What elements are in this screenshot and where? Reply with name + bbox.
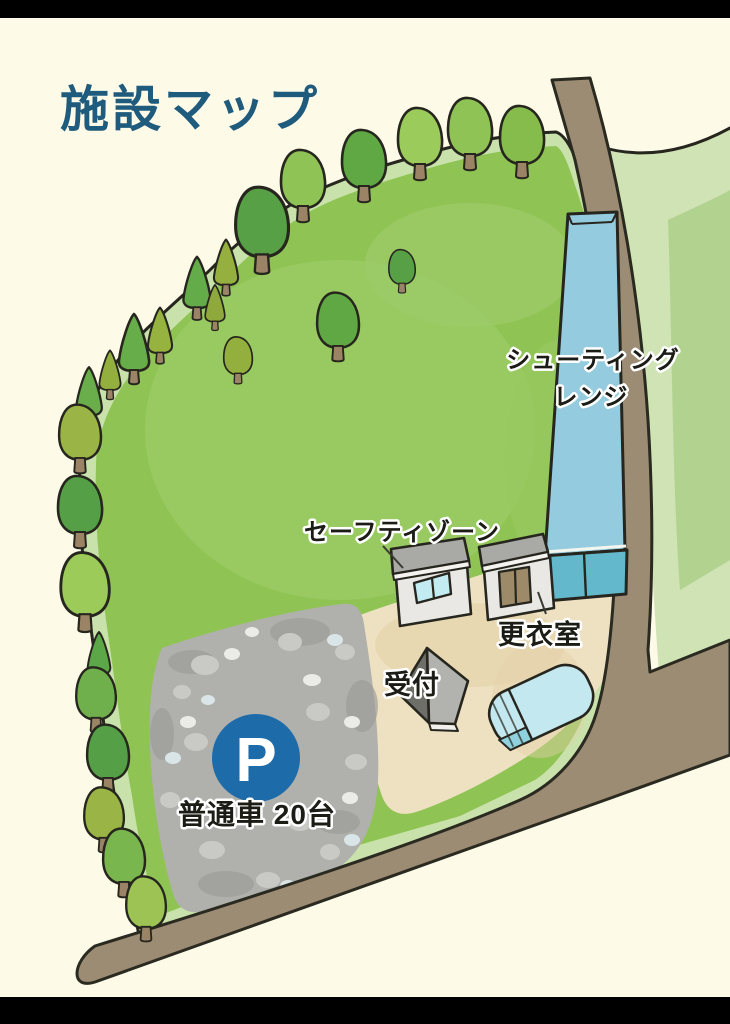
shooting-range-label-line2: レンジ	[554, 384, 629, 411]
parking-symbol: P	[235, 726, 276, 795]
shooting-range-label-line1: シューティング	[506, 347, 680, 374]
facility-map-page: P 施設マップ シューティング レンジ セーフティゾーン 更衣室 受付 普通車 …	[0, 0, 730, 1024]
letterbox-bar-bottom	[0, 997, 730, 1024]
reception-label: 受付	[384, 669, 440, 700]
parking-badge: P	[212, 714, 300, 802]
page-title: 施設マップ	[60, 83, 320, 137]
safety-zone-label: セーフティゾーン	[304, 518, 500, 546]
letterbox-bar-top	[0, 0, 730, 18]
changing-room-label: 更衣室	[498, 619, 582, 650]
facility-map-illustration: P 施設マップ シューティング レンジ セーフティゾーン 更衣室 受付 普通車 …	[0, 0, 730, 1024]
parking-capacity-label: 普通車 20台	[178, 798, 336, 830]
safety-zone-building	[391, 538, 471, 626]
